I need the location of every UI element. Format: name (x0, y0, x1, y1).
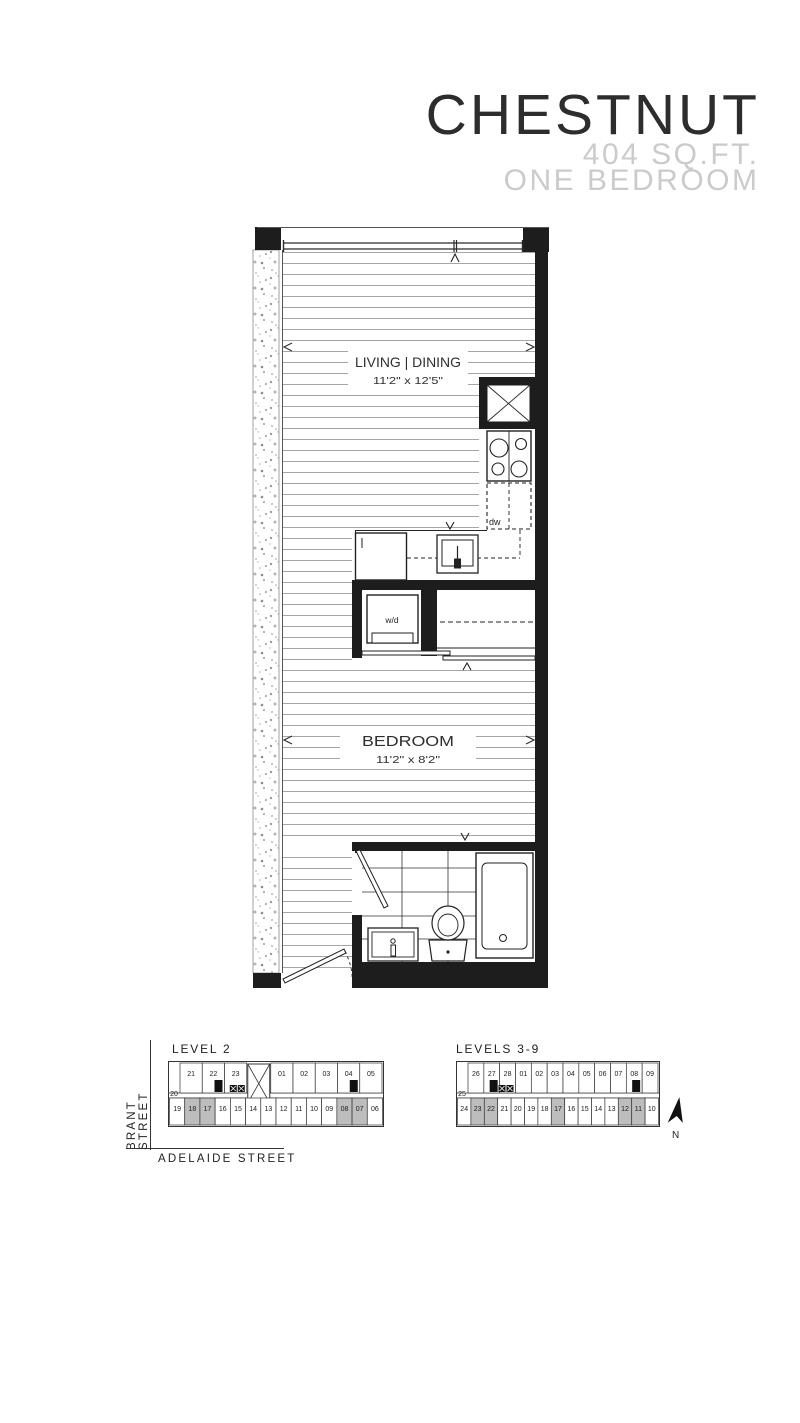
keyplan-unit-number: 19 (527, 1106, 535, 1113)
vanity-sink-icon (368, 928, 418, 961)
keyplan-unit-number: 06 (599, 1071, 607, 1078)
bathroom (355, 847, 533, 962)
living-room-name: LIVING | DINING (355, 354, 461, 370)
floorplan-svg: dw w/d LIVING | DINING 11'2" x 12'5" (248, 222, 558, 1002)
keyplan-unit-cell (579, 1063, 595, 1093)
keyplan-level2: 2122230102030405201918171615141312111009… (167, 1060, 385, 1130)
keyplan-unit-cell (595, 1063, 611, 1093)
plan-title: CHESTNUT (426, 88, 760, 142)
unit-location-marker (215, 1080, 223, 1092)
keyplan-unit-cell (611, 1063, 627, 1093)
keyplan-unit-number: 12 (280, 1106, 288, 1113)
keyplan-unit-number: 05 (583, 1071, 591, 1078)
dishwasher: dw (487, 483, 531, 529)
keyplan-unit-number: 16 (219, 1106, 227, 1113)
brant-street-line (150, 1040, 151, 1150)
street-label-brant: BRANT STREET (126, 1042, 150, 1150)
street-label-adelaide: ADELAIDE STREET (158, 1153, 296, 1165)
level2-label: LEVEL 2 (172, 1042, 232, 1056)
keyplan-unit-number: 22 (209, 1071, 217, 1078)
keyplan-unit-number: 17 (554, 1106, 562, 1113)
fridge (356, 533, 407, 580)
kitchen-shaft (479, 377, 537, 429)
keyplan-unit-number: 03 (322, 1071, 330, 1078)
keyplan-unit-number: 16 (568, 1106, 576, 1113)
keyplan-unit-cell (360, 1063, 382, 1093)
kitchen-sink-icon (437, 535, 478, 573)
keyplan-unit-number: 08 (630, 1071, 638, 1078)
keyplan-unit-number: 14 (249, 1106, 257, 1113)
keyplan-unit-number: 13 (608, 1106, 616, 1113)
unit-location-marker (490, 1080, 498, 1092)
keyplan-unit-number: 09 (325, 1106, 333, 1113)
keyplan-unit-number: 02 (300, 1071, 308, 1078)
keyplan-levels39: 2627280102030405060708092524232221201918… (455, 1060, 661, 1130)
keyplan-unit-number: 15 (234, 1106, 242, 1113)
keyplan-unit-cell (271, 1063, 293, 1093)
unit-location-marker (350, 1080, 358, 1092)
keyplan-unit-cell (315, 1063, 337, 1093)
dishwasher-label: dw (489, 517, 501, 527)
keyplan-unit-number: 05 (367, 1071, 375, 1078)
keyplan-unit-number: 13 (264, 1106, 272, 1113)
bedroom-name: BEDROOM (362, 733, 454, 750)
keyplan-unit-number: 28 (504, 1071, 512, 1078)
keyplan-unit-number: 18 (541, 1106, 549, 1113)
keyplan-unit-number: 07 (356, 1106, 364, 1113)
keyplan-unit-number: 01 (278, 1071, 286, 1078)
north-arrow: N (666, 1094, 692, 1142)
keyplan-unit-number: 17 (204, 1106, 212, 1113)
toilet-icon (429, 906, 467, 961)
keyplan-unit-number: 04 (567, 1071, 575, 1078)
living-room-dims: 11'2" x 12'5" (373, 375, 443, 387)
keyplan-unit-cell (180, 1063, 202, 1093)
keyplan-unit-number: 20 (170, 1091, 178, 1098)
keyplan-unit-number: 11 (635, 1106, 642, 1113)
keyplan-unit-cell (642, 1063, 658, 1093)
keyplan-unit-number: 18 (188, 1106, 196, 1113)
levels39-label: LEVELS 3-9 (456, 1042, 540, 1056)
keyplan-unit-number: 20 (514, 1106, 522, 1113)
keyplan-unit-number: 24 (460, 1106, 468, 1113)
keyplan-unit-cell (531, 1063, 547, 1093)
keyplan-unit-number: 27 (488, 1071, 496, 1078)
keyplan-unit-number: 09 (646, 1071, 654, 1078)
window-wall (257, 228, 549, 253)
keyplan-unit-number: 01 (520, 1071, 528, 1078)
keyplan-unit-number: 26 (472, 1071, 480, 1078)
keyplan-unit-number: 10 (310, 1106, 318, 1113)
keyplan-unit-number: 14 (594, 1106, 602, 1113)
keyplan-unit-cell (516, 1063, 532, 1093)
keyplan-unit-cell (468, 1063, 484, 1093)
bathtub-icon (476, 853, 533, 958)
bathroom-door (355, 847, 388, 908)
keyplan-unit-number: 11 (295, 1106, 302, 1113)
keyplan-unit-number: 25 (458, 1091, 466, 1098)
keyplan-unit-number: 08 (341, 1106, 349, 1113)
keyplan-unit-number: 04 (345, 1071, 353, 1078)
north-label: N (672, 1130, 679, 1141)
keyplan-unit-number: 23 (232, 1071, 240, 1078)
keyplan-unit-number: 21 (187, 1071, 195, 1078)
washer-dryer: w/d (367, 595, 418, 643)
keyplan-unit-number: 23 (474, 1106, 482, 1113)
north-arrow-icon (668, 1096, 687, 1125)
keyplan-unit-number: 12 (621, 1106, 629, 1113)
keyplan-unit-number: 02 (535, 1071, 543, 1078)
keyplan-unit-number: 03 (551, 1071, 559, 1078)
unit-location-marker (632, 1080, 640, 1092)
keyplan-unit-cell (563, 1063, 579, 1093)
unit-floorplan: dw w/d LIVING | DINING 11'2" x 12'5" (248, 222, 558, 1007)
adelaide-street-line (126, 1148, 284, 1149)
keyplan-unit-number: 21 (501, 1106, 509, 1113)
cooktop-icon (487, 431, 531, 481)
keyplan-unit-cell (547, 1063, 563, 1093)
keyplan-unit-number: 06 (371, 1106, 379, 1113)
keyplan-unit-number: 22 (487, 1106, 495, 1113)
left-concrete-wall (253, 250, 283, 973)
keyplan-unit-number: 15 (581, 1106, 589, 1113)
keyplan-unit-number: 10 (648, 1106, 656, 1113)
plan-header: CHESTNUT 404 SQ.FT. ONE BEDROOM (426, 88, 757, 194)
bedroom-dims: 11'2" x 8'2" (376, 754, 440, 766)
plan-type: ONE BEDROOM (426, 168, 760, 194)
keyplan-unit-cell (293, 1063, 315, 1093)
keyplan-unit-number: 07 (615, 1071, 623, 1078)
keyplan-unit-number: 19 (173, 1106, 181, 1113)
washer-dryer-label: w/d (384, 615, 399, 625)
